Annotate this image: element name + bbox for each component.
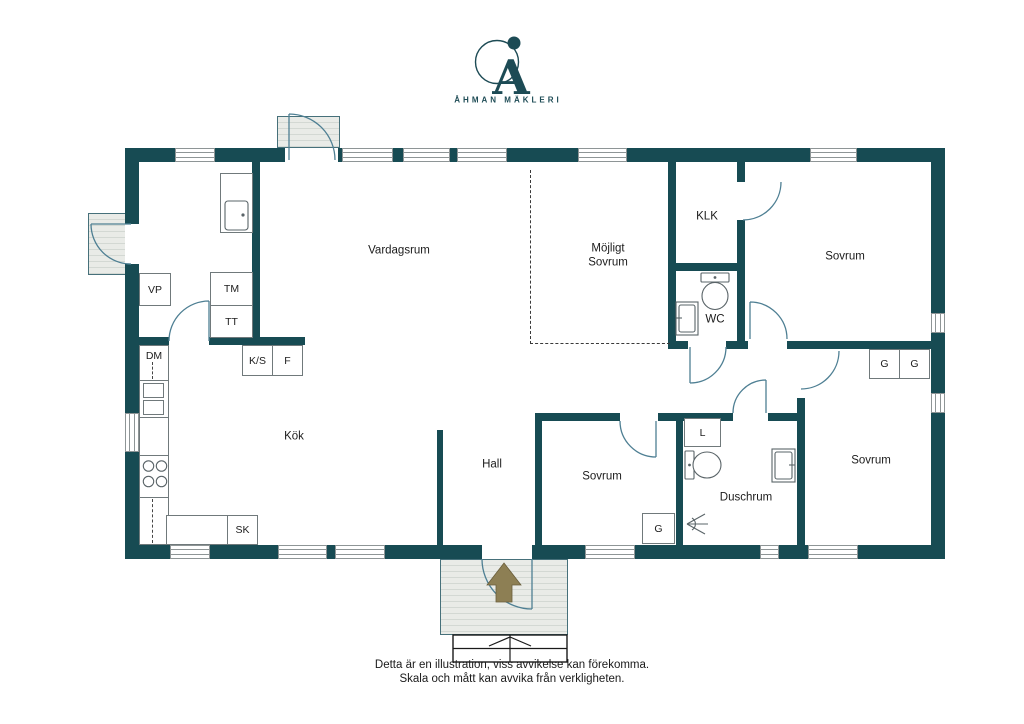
dishwasher-dashed-line xyxy=(152,362,153,379)
kitchen-sink-basin xyxy=(143,383,164,398)
cabinet-dashed-line xyxy=(152,499,153,543)
linen-closet-label: L xyxy=(700,427,706,439)
freezer-label: F xyxy=(284,355,290,367)
door-arc xyxy=(801,351,839,389)
wall-segment xyxy=(737,162,745,182)
wardrobe-label: G xyxy=(654,523,662,535)
window xyxy=(931,313,945,333)
kitchen-sink-basin xyxy=(143,400,164,415)
dryer-box: TT xyxy=(210,305,253,338)
window xyxy=(810,148,857,162)
wall-segment xyxy=(535,413,542,545)
door-arc xyxy=(733,380,766,413)
door-opening xyxy=(125,224,139,264)
linen-closet-box: L xyxy=(684,418,721,447)
room-label-mojligt-sovrum-line1: Möjligt xyxy=(591,242,624,257)
sink-icon xyxy=(772,449,795,482)
room-label-klk: KLK xyxy=(696,210,718,225)
logo-circle xyxy=(476,41,519,84)
floorplan-canvas: VP TM TT K/S F SK L G G G DM Vardagsrum … xyxy=(0,0,1024,724)
toilet-button xyxy=(688,464,691,467)
wardrobe-label: G xyxy=(910,358,918,370)
window xyxy=(760,545,779,559)
window xyxy=(342,148,393,162)
room-label-sovrum-mid: Sovrum xyxy=(582,470,622,485)
sink-basin xyxy=(775,452,792,479)
window xyxy=(585,545,635,559)
brand-name: ÅHMAN MÄKLERI xyxy=(454,96,561,105)
door-arc xyxy=(750,302,787,339)
room-label-kok: Kök xyxy=(284,430,304,445)
kitchen-counter-left xyxy=(139,345,169,545)
fridge-box: K/S xyxy=(242,345,273,376)
room-label-wc: WC xyxy=(705,313,724,328)
window xyxy=(457,148,507,162)
window xyxy=(931,393,945,413)
wall-segment xyxy=(437,430,443,545)
shower-spray xyxy=(687,514,708,534)
window xyxy=(403,148,450,162)
room-label-vardagsrum: Vardagsrum xyxy=(368,244,430,259)
toilet-tank xyxy=(701,273,729,282)
pantry-label: SK xyxy=(235,524,249,536)
disclaimer: Detta är en illustration, viss avvikelse… xyxy=(375,658,649,687)
wall-segment xyxy=(676,413,683,545)
wall-segment xyxy=(787,341,931,349)
freezer-box: F xyxy=(272,345,303,376)
stairs-chevron xyxy=(489,637,531,646)
wall-segment xyxy=(668,341,688,349)
room-label-sovrum-ne: Sovrum xyxy=(825,250,865,265)
door-opening xyxy=(482,545,532,559)
door-arc xyxy=(743,182,781,220)
wall-segment xyxy=(726,341,748,349)
wall-segment xyxy=(139,337,169,345)
counter-divider xyxy=(139,497,169,498)
utility-sink-cabinet xyxy=(220,173,253,233)
door-arc xyxy=(169,301,209,341)
toilet-tank xyxy=(685,451,694,479)
wall-segment xyxy=(931,148,945,559)
pantry-box: SK xyxy=(227,515,258,545)
heat-pump-label: VP xyxy=(148,284,162,296)
toilet-bowl xyxy=(693,452,721,478)
back-porch xyxy=(277,116,340,148)
side-porch xyxy=(88,213,126,275)
heat-pump-box: VP xyxy=(139,273,171,306)
toilet-icon xyxy=(685,451,721,479)
disclaimer-line2: Skala och mått kan avvika från verklighe… xyxy=(375,672,649,686)
fridge-label: K/S xyxy=(249,355,266,367)
window xyxy=(175,148,215,162)
washing-machine-label: TM xyxy=(224,283,239,295)
wardrobe-box: G xyxy=(869,349,900,379)
wall-segment xyxy=(668,263,745,271)
wall-segment xyxy=(737,220,745,345)
sink-cabinet xyxy=(676,302,698,335)
room-label-hall: Hall xyxy=(482,458,502,473)
room-label-duschrum: Duschrum xyxy=(720,491,772,506)
washing-machine-box: TM xyxy=(210,272,253,306)
wall-segment xyxy=(209,337,305,345)
wall-segment xyxy=(535,413,620,421)
toilet-button xyxy=(714,276,717,279)
logo-ring-dot xyxy=(508,37,521,50)
room-label-sovrum-se: Sovrum xyxy=(851,454,891,469)
wall-segment xyxy=(252,162,260,345)
door-opening xyxy=(285,148,338,162)
window xyxy=(578,148,627,162)
sink-cabinet xyxy=(772,449,795,482)
window xyxy=(170,545,210,559)
wall-segment xyxy=(797,398,805,545)
wall-segment xyxy=(125,148,139,559)
wardrobe-box: G xyxy=(899,349,930,379)
wardrobe-box: G xyxy=(642,513,675,544)
entry-porch xyxy=(440,559,568,635)
counter-divider xyxy=(139,380,169,381)
dishwasher-label: DM xyxy=(146,350,162,362)
window xyxy=(335,545,385,559)
window xyxy=(278,545,327,559)
room-label-mojligt-sovrum-line2: Sovrum xyxy=(588,256,628,271)
wardrobe-label: G xyxy=(880,358,888,370)
window xyxy=(808,545,858,559)
window xyxy=(125,413,139,452)
door-arc xyxy=(690,347,726,383)
dryer-label: TT xyxy=(225,316,238,328)
toilet-icon xyxy=(701,273,729,310)
toilet-bowl xyxy=(702,283,728,310)
counter-divider xyxy=(139,417,169,418)
kitchen-counter-bottom xyxy=(166,515,228,545)
sink-icon xyxy=(676,302,698,335)
sink-basin xyxy=(679,305,695,332)
disclaimer-line1: Detta är en illustration, viss avvikelse… xyxy=(375,658,649,672)
shower-icon xyxy=(687,514,708,534)
counter-divider xyxy=(139,455,169,456)
door-arc xyxy=(620,421,656,457)
